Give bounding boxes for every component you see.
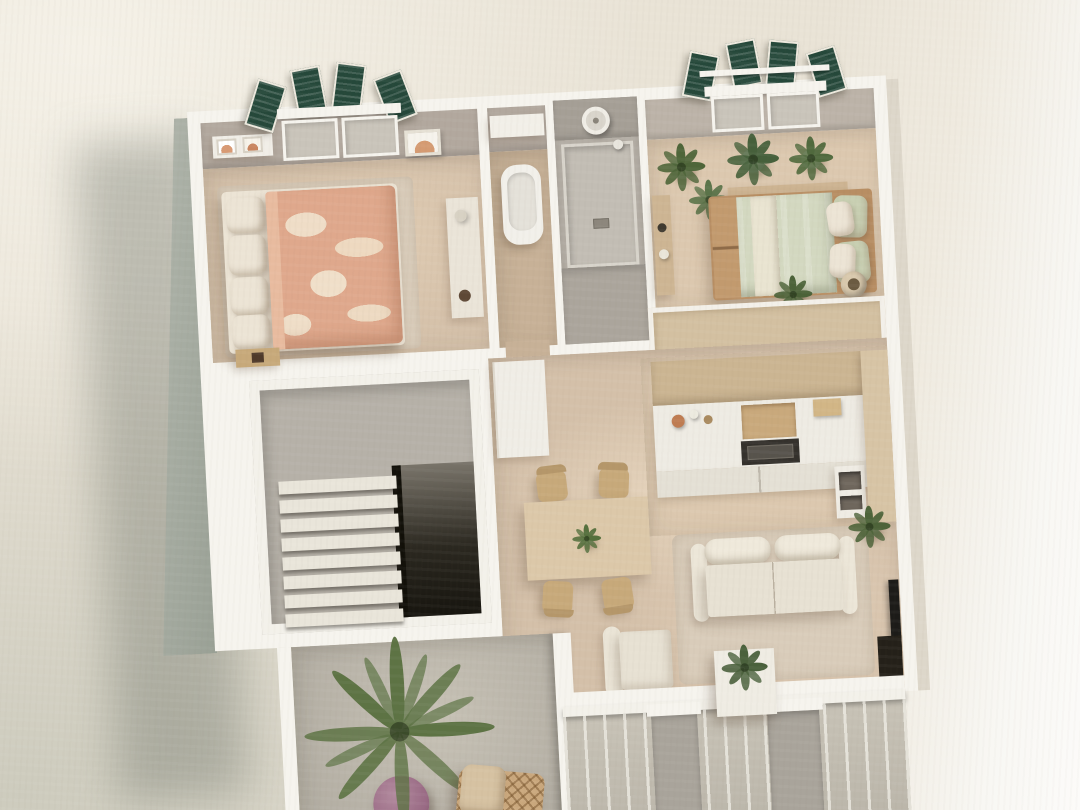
corner-plant bbox=[846, 504, 892, 550]
floor-plan-render bbox=[186, 59, 926, 810]
dining-chair bbox=[598, 468, 629, 499]
dining-chair-back bbox=[543, 608, 573, 618]
bed-1-pillow bbox=[227, 234, 267, 276]
palm-plant bbox=[326, 658, 473, 805]
potted-plant bbox=[725, 131, 782, 188]
window-pane bbox=[711, 94, 765, 133]
cutting-board bbox=[813, 398, 842, 416]
bed-1-duvet bbox=[265, 185, 403, 350]
balcony-pier bbox=[651, 712, 704, 810]
window-shutter bbox=[725, 38, 763, 89]
sofa-back-cushion bbox=[704, 536, 771, 565]
stair-tread bbox=[279, 494, 398, 513]
sofa-seat bbox=[705, 558, 844, 617]
stair-tread bbox=[278, 476, 397, 495]
bedroom-1 bbox=[200, 109, 489, 363]
terrace-left bbox=[277, 633, 580, 810]
window-pane bbox=[281, 118, 339, 161]
stair-tread bbox=[283, 570, 402, 589]
oven-glass bbox=[747, 444, 794, 460]
stairwell bbox=[249, 369, 492, 635]
stair-tread bbox=[280, 513, 399, 532]
stair-tread bbox=[284, 589, 403, 608]
cooktop bbox=[741, 403, 797, 440]
stair-tread bbox=[285, 608, 404, 627]
shower-room bbox=[553, 96, 650, 344]
render-viewport bbox=[0, 0, 1080, 810]
shower-tray bbox=[561, 141, 639, 269]
planter-plant bbox=[719, 642, 769, 692]
stair-tread bbox=[281, 532, 400, 551]
utility-block bbox=[562, 264, 650, 344]
bed-1-pillow bbox=[232, 314, 272, 350]
hall-closet bbox=[492, 360, 549, 459]
potted-plant bbox=[787, 134, 835, 182]
lounge-chair-cushion bbox=[459, 764, 507, 810]
sofa-back-cushion bbox=[774, 532, 841, 561]
bedroom-2 bbox=[645, 88, 885, 308]
bed-1-pillow bbox=[230, 276, 270, 316]
window-pane bbox=[341, 115, 399, 158]
framed-wall-art bbox=[404, 129, 441, 157]
bench-decor bbox=[252, 352, 265, 363]
framed-print bbox=[242, 136, 263, 153]
stair-tread bbox=[282, 551, 401, 570]
balcony-bottom bbox=[560, 635, 913, 810]
bathroom-shelf bbox=[489, 113, 544, 138]
juliet-rail bbox=[699, 64, 829, 77]
bed-1-pillow bbox=[225, 196, 265, 234]
toilet-seat bbox=[506, 172, 537, 231]
bed-2-pillow bbox=[825, 200, 856, 238]
window-pane bbox=[767, 91, 821, 130]
framed-print bbox=[216, 138, 237, 155]
shelf-niche bbox=[839, 471, 862, 490]
window-shutter bbox=[765, 40, 799, 88]
balcony-pier bbox=[767, 710, 826, 810]
dining-chair-back bbox=[598, 462, 628, 471]
shower-drain bbox=[593, 218, 610, 229]
